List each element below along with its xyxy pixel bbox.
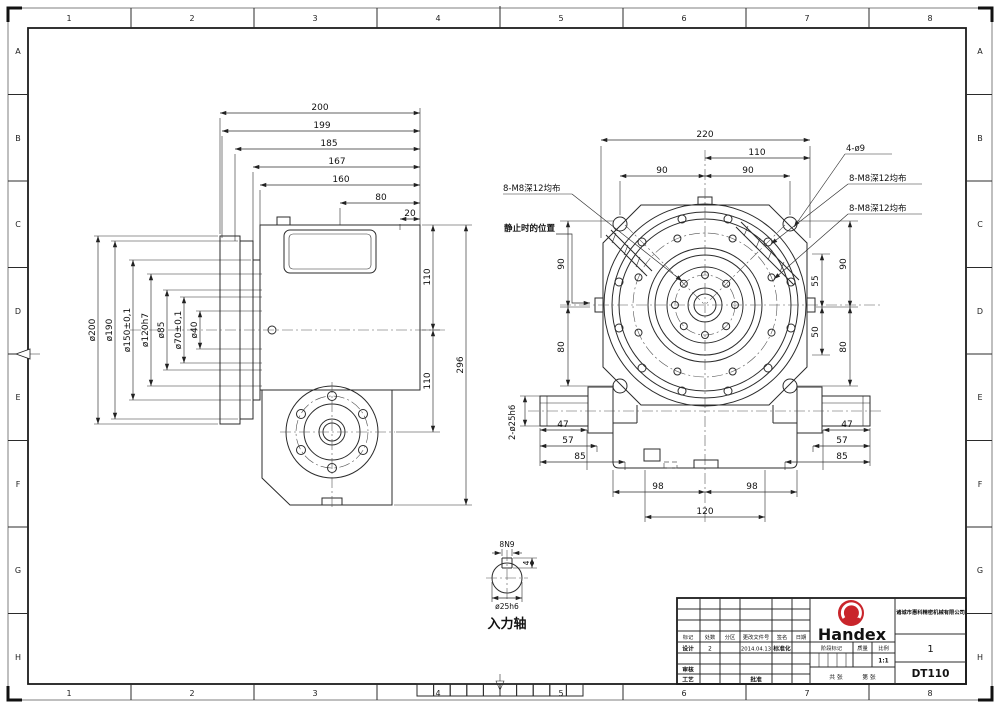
row-label: F: [16, 480, 21, 489]
brand-logo: Handex: [818, 600, 887, 644]
dim-left-90: 90: [557, 258, 567, 270]
col-label: 4: [435, 14, 440, 23]
row-label: H: [977, 653, 983, 662]
dim-98a: 98: [652, 482, 664, 492]
dim-120: 120: [696, 507, 713, 517]
cell-approve: 批准: [750, 676, 762, 684]
scale-label: 比例: [878, 644, 889, 652]
dim-key-depth: 4: [522, 560, 531, 565]
col-label: 2: [189, 14, 194, 23]
row-label: A: [977, 47, 983, 56]
col-label: 3: [312, 689, 317, 698]
th-sign: 签名: [777, 633, 788, 641]
dim-110b: 110: [423, 372, 433, 389]
col-label: 8: [927, 689, 932, 698]
title-block: 标记 处数 分区 更改文件号 签名 日期 设计 2 2014.04.13 标准化…: [677, 598, 966, 684]
sheet-label: 第 张: [862, 673, 876, 681]
dim-dia190: ø190: [105, 318, 115, 341]
revision-table: 标记 处数 分区 更改文件号 签名 日期 设计 2 2014.04.13 标准化…: [682, 633, 806, 684]
dim-dia120: ø120h7: [141, 313, 151, 347]
dim-98b: 98: [746, 482, 758, 492]
th-zone: 分区: [725, 633, 736, 641]
dim-20: 20: [404, 209, 416, 219]
front-view-dimensions: 220 110 90 90 4-ø9 8-M8深12均布 8-M8深12均布 8…: [503, 130, 922, 522]
sheets-label: 共 张: [829, 673, 843, 681]
input-shaft-detail: 8N9 4 ø25h6 入力轴: [486, 540, 537, 632]
key-slots: [606, 222, 799, 285]
col-label: 6: [681, 14, 686, 23]
row-label: G: [15, 566, 21, 575]
dim-dia70: ø70±0,1: [174, 311, 184, 350]
cell-design-date: 2014.04.13: [741, 647, 771, 653]
corner-marks: [8, 8, 992, 700]
border-column-labels: 1 2 3 4 5 6 7 8 1 2 3 4 5 6 7 8: [66, 14, 932, 698]
row-label: G: [977, 566, 983, 575]
dim-br-85: 85: [836, 452, 847, 462]
row-label: E: [15, 393, 20, 402]
row-label: B: [15, 134, 21, 143]
row-label: B: [977, 134, 983, 143]
col-label: 4: [435, 689, 440, 698]
front-view: 220 110 90 90 4-ø9 8-M8深12均布 8-M8深12均布 8…: [503, 130, 922, 525]
dim-dia150: ø150±0,1: [123, 308, 133, 353]
cell-design-sign: 2: [708, 647, 712, 653]
col-label: 5: [558, 14, 563, 23]
row-label: D: [977, 307, 983, 316]
side-view: 200 199 185 167 160 80 20 ø200 ø190 ø150…: [88, 103, 472, 510]
dim-199: 199: [313, 121, 330, 131]
col-label: 1: [66, 689, 71, 698]
th-date: 日期: [796, 634, 807, 641]
border-row-labels: A B C D E F G H A B C D E F G H: [15, 47, 983, 662]
dim-right-90: 90: [839, 258, 849, 270]
row-label: A: [15, 47, 21, 56]
dim-right-55: 55: [811, 275, 821, 286]
cell-design: 设计: [682, 645, 694, 653]
dim-167: 167: [328, 157, 345, 167]
col-label: 7: [804, 14, 809, 23]
dim-dia40: ø40: [190, 321, 200, 338]
dim-br-57: 57: [836, 436, 847, 446]
row-label: E: [977, 393, 982, 402]
front-view-geometry: [528, 150, 882, 525]
dim-key-width: 8N9: [499, 540, 514, 549]
dim-80: 80: [375, 193, 387, 203]
dim-shaft-dia: ø25h6: [495, 602, 519, 611]
th-file: 更改文件号: [743, 633, 770, 641]
dim-200: 200: [311, 103, 328, 113]
callout-2xd25h6: 2-ø25h6: [508, 405, 518, 440]
dim-90a: 90: [656, 166, 668, 176]
drawing-sheet: 1 2 3 4 5 6 7 8 1 2 3 4 5 6 7 8 A B C D …: [0, 0, 1000, 711]
col-label: 2: [189, 689, 194, 698]
cell-review: 审核: [682, 666, 694, 674]
model-number: DT110: [912, 668, 950, 680]
callout-8m8-hub: 8-M8深12均布: [503, 183, 561, 194]
row-label: C: [15, 220, 21, 229]
dim-bl-47: 47: [557, 420, 568, 430]
dim-110a: 110: [423, 268, 433, 285]
dim-296: 296: [456, 356, 466, 373]
th-count: 处数: [705, 633, 716, 641]
dim-bl-57: 57: [562, 436, 573, 446]
cell-standard: 标准化: [772, 645, 791, 653]
engineering-drawing: 1 2 3 4 5 6 7 8 1 2 3 4 5 6 7 8 A B C D …: [0, 0, 1000, 711]
col-label: 3: [312, 14, 317, 23]
row-label: F: [978, 480, 983, 489]
dim-dia85: ø85: [157, 322, 167, 339]
side-view-geometry: [130, 217, 447, 510]
dim-bl-85: 85: [574, 452, 585, 462]
col-label: 1: [66, 14, 71, 23]
row-label: D: [15, 307, 21, 316]
dim-220: 220: [696, 130, 713, 140]
dim-right-80: 80: [839, 341, 849, 353]
col-label: 8: [927, 14, 932, 23]
cell-process: 工艺: [682, 676, 694, 684]
col-label: 7: [804, 689, 809, 698]
scale-value: 1:1: [878, 659, 888, 665]
callout-8m8-mid: 8-M8深12均布: [849, 203, 907, 214]
callout-4xd9: 4-ø9: [846, 144, 865, 154]
input-shaft-flange: [280, 382, 395, 510]
side-view-dimensions: 200 199 185 167 160 80 20 ø200 ø190 ø150…: [88, 103, 472, 505]
th-mark: 标记: [683, 633, 694, 641]
callout-8m8-outer: 8-M8深12均布: [849, 173, 907, 184]
dim-110: 110: [748, 148, 765, 158]
company-name: 诸城市惠科精密机械有限公司: [896, 608, 965, 616]
dim-br-47: 47: [841, 420, 852, 430]
dim-dia200: ø200: [88, 318, 98, 341]
dim-90b: 90: [742, 166, 754, 176]
brand-name: Handex: [818, 625, 887, 644]
dim-185: 185: [320, 139, 337, 149]
center-mark-left: [14, 349, 40, 359]
dim-left-80: 80: [557, 341, 567, 353]
weight-label: 质量: [857, 644, 868, 652]
col-label: 5: [558, 689, 563, 698]
dim-right-50: 50: [811, 326, 821, 338]
detail-title: 入力轴: [487, 616, 526, 632]
row-label: C: [977, 220, 983, 229]
dim-160: 160: [332, 175, 349, 185]
part-number: 1: [927, 644, 933, 655]
col-label: 6: [681, 689, 686, 698]
callout-rest-position: 静止时的位置: [504, 223, 556, 234]
stage-label: 阶段标记: [821, 644, 843, 652]
row-label: H: [15, 653, 21, 662]
